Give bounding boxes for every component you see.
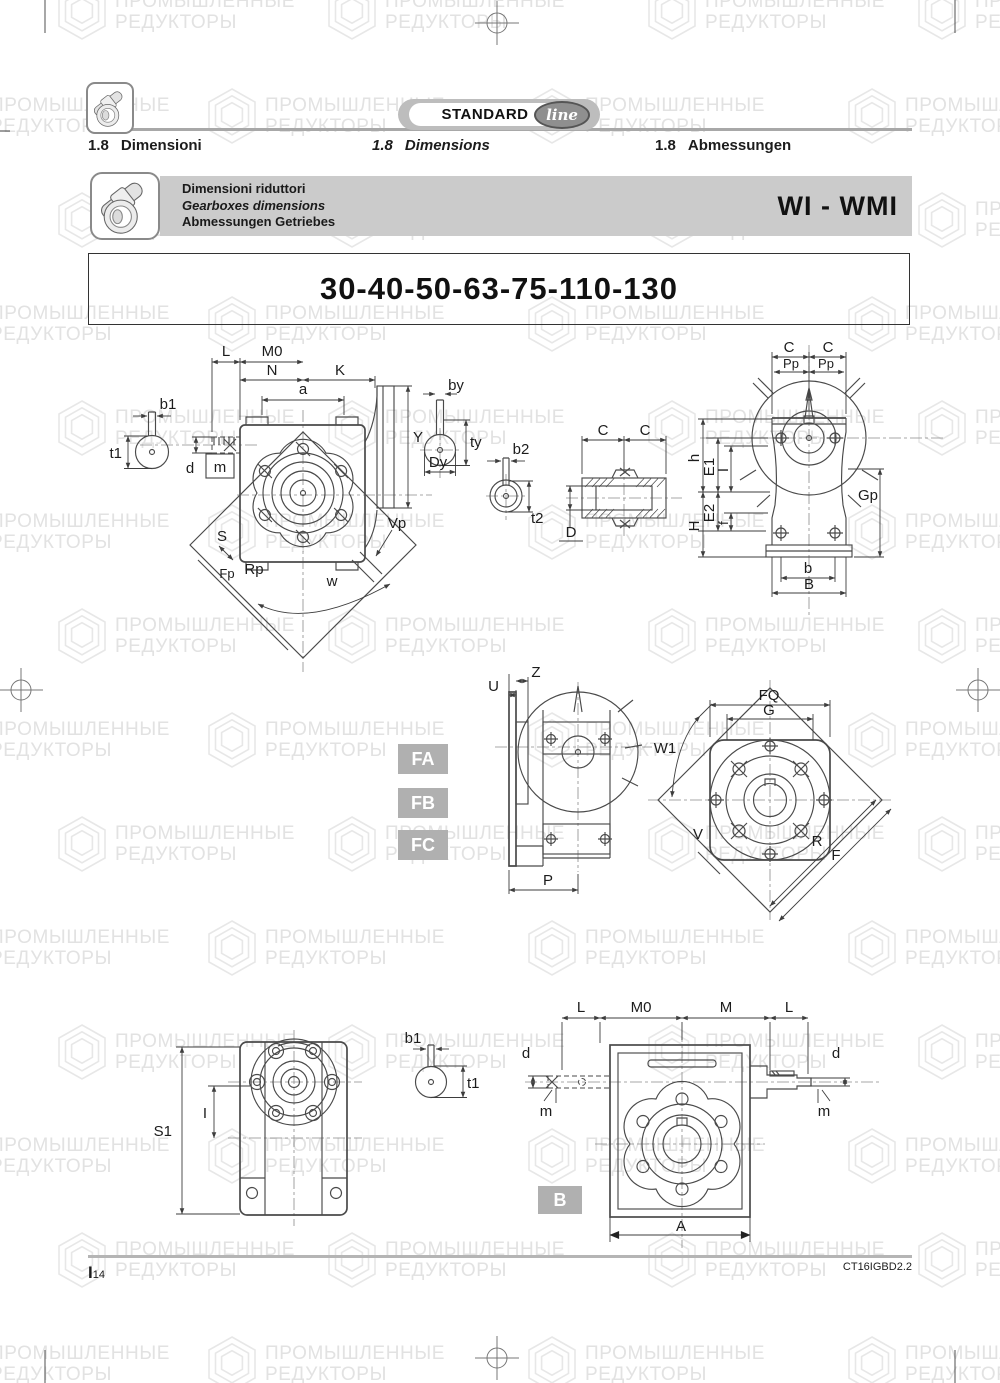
footer-rule	[88, 1255, 912, 1258]
dim-W1: W1	[654, 740, 677, 757]
dim-d2: d	[832, 1045, 840, 1062]
dim-Pp1: Pp	[783, 356, 799, 371]
dim-U: U	[488, 678, 499, 695]
dim-G: G	[763, 702, 775, 719]
dim-Rp: Rp	[244, 561, 263, 578]
dim-t1: t1	[109, 445, 122, 462]
dim-by: by	[448, 377, 464, 394]
dim-Pp2: Pp	[818, 356, 834, 371]
dim-R: R	[812, 833, 823, 850]
dim-S: S	[217, 528, 227, 545]
drawing-side-view: C C Pp Pp h E1 I E2 f H Gp	[686, 339, 945, 615]
dim-L2: L	[785, 999, 793, 1016]
dim-V: V	[693, 826, 703, 843]
dim-m2: m	[818, 1103, 831, 1120]
print-marks	[0, 0, 1000, 1383]
dim-t1: t1	[467, 1075, 480, 1092]
dim-A: A	[676, 1218, 686, 1235]
dim-C1: C	[784, 339, 795, 356]
dim-b1: b1	[160, 396, 177, 413]
dim-C1: C	[598, 422, 609, 439]
dim-B: B	[804, 576, 814, 593]
badge-fa: FA	[398, 744, 448, 774]
dim-L1: L	[577, 999, 585, 1016]
badge-b: B	[538, 1186, 582, 1214]
dim-I: I	[715, 468, 732, 472]
dim-D: D	[566, 524, 577, 541]
dim-K: K	[335, 362, 345, 379]
drawing-flange-view: FQ G W1 V R F	[648, 680, 892, 921]
dim-M0: M0	[631, 999, 652, 1016]
dim-E2: E2	[701, 504, 718, 522]
dim-Dy: Dy	[429, 454, 448, 471]
dim-Vp: Vp	[388, 515, 406, 532]
dim-F: F	[831, 847, 840, 864]
badge-fb: FB	[398, 788, 448, 818]
dim-Fp: Fp	[219, 566, 234, 581]
dim-N: N	[267, 362, 278, 379]
dim-Z: Z	[531, 664, 540, 681]
dim-H: H	[686, 521, 703, 532]
dim-b1: b1	[405, 1030, 422, 1047]
dim-w: w	[326, 573, 338, 590]
dim-d1: d	[522, 1045, 530, 1062]
dim-t2: t2	[531, 510, 544, 527]
catalog-page: ПРОМЫШЛЕННЫЕРЕДУКТОРЫПРОМЫШЛЕННЫЕРЕДУКТО…	[0, 0, 1000, 1383]
drawing-hollow-shaft: C C D	[559, 422, 682, 541]
dim-M0: M0	[262, 343, 283, 360]
dim-E1: E1	[701, 458, 718, 476]
dim-d: d	[186, 460, 194, 477]
dim-I: I	[203, 1105, 207, 1122]
dim-C2: C	[823, 339, 834, 356]
dim-Gp: Gp	[858, 487, 878, 504]
badge-fc: FC	[398, 830, 448, 860]
dim-m1: m	[540, 1103, 553, 1120]
dim-M: M	[720, 999, 733, 1016]
dim-L: L	[222, 343, 230, 360]
dim-Y: Y	[413, 429, 423, 446]
dim-f: f	[716, 521, 731, 525]
dim-b: b	[804, 560, 812, 577]
dim-S1: S1	[154, 1123, 172, 1140]
drawing-top-view: S1 I b1 t1	[154, 1030, 480, 1226]
dim-ty: ty	[470, 434, 482, 451]
drawing-front-view-flange: Y m d b1 t1 L M0 N	[109, 343, 432, 672]
page-number: I14	[88, 1263, 105, 1283]
doc-code: CT16IGBD2.2	[843, 1261, 912, 1273]
drawing-side-view-flange: Z U P	[488, 664, 652, 894]
drawing-bore-section: b2 t2	[486, 441, 544, 527]
dim-a: a	[299, 381, 308, 398]
dim-C2: C	[640, 422, 651, 439]
dim-b2: b2	[513, 441, 530, 458]
technical-drawings: .ln{stroke:#4a4a4a;stroke-width:1.15;fil…	[0, 0, 1000, 1383]
page-number-value: 14	[93, 1269, 105, 1281]
dim-P: P	[543, 872, 553, 889]
drawing-output-shaft-section: by ty Dy	[420, 377, 482, 478]
dim-m: m	[214, 459, 227, 476]
